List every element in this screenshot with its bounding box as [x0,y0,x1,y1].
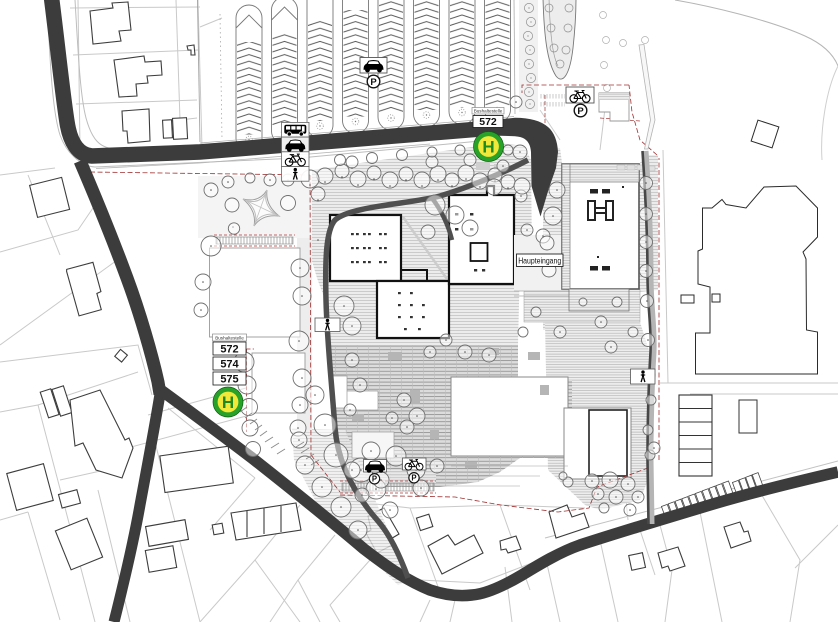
svg-text:Haupteingang: Haupteingang [518,257,561,266]
svg-text:572: 572 [220,343,238,355]
svg-text:572: 572 [479,116,497,128]
svg-text:575: 575 [220,373,238,385]
svg-text:Bushaltestelle: Bushaltestelle [215,336,244,341]
svg-text:574: 574 [220,358,239,370]
svg-text:Bushaltestelle: Bushaltestelle [474,109,503,114]
